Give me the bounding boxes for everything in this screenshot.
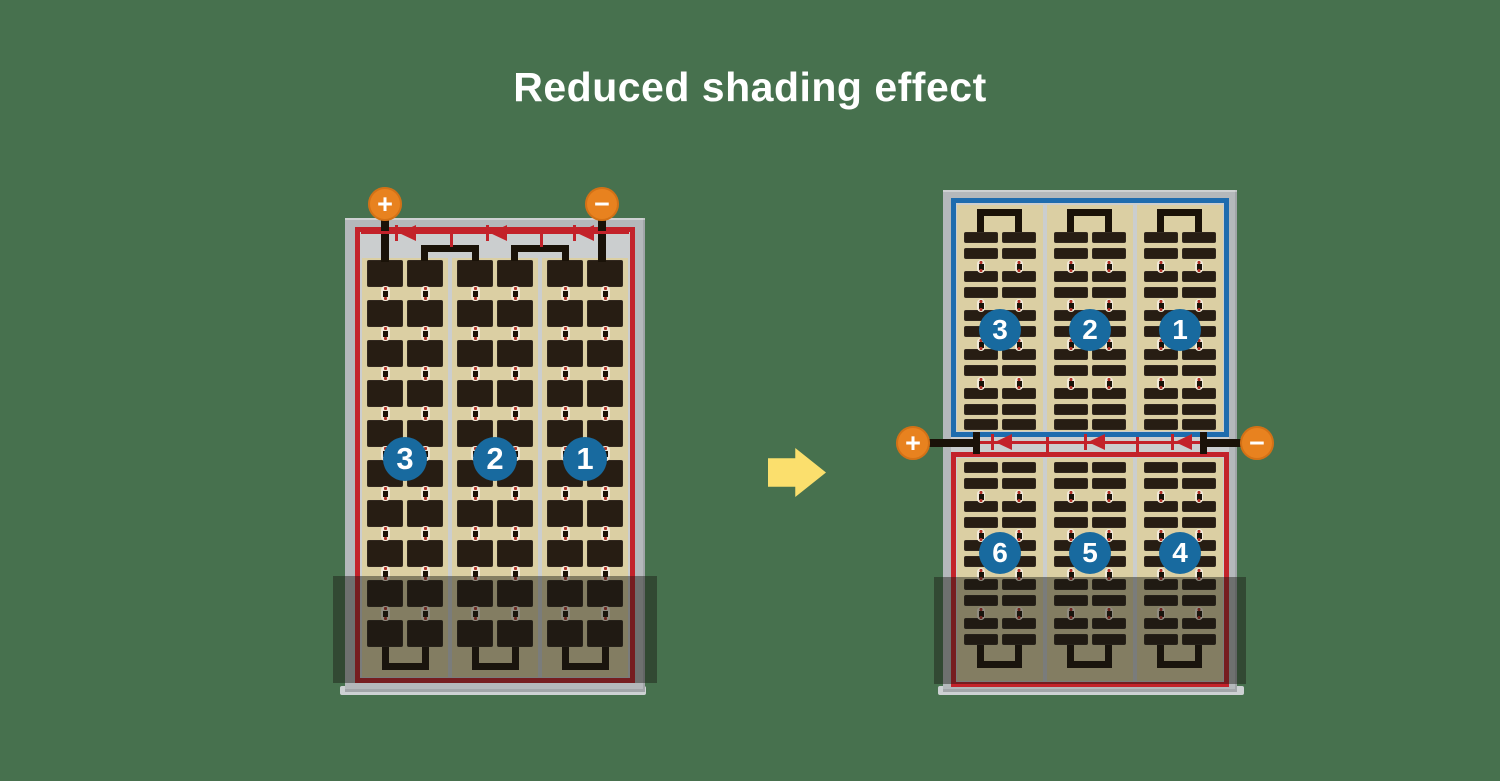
string-separator [1133,205,1137,431]
half-cell [1002,517,1036,528]
reduced-shading-diagram: Reduced shading effect 321+− 362514+− [0,0,1500,781]
half-cell [964,517,998,528]
half-cell [1144,232,1178,243]
half-cell [964,462,998,473]
half-cell [1144,462,1178,473]
half-cell [1054,478,1088,489]
half-cell [1092,404,1126,415]
cell-connector [1105,299,1113,312]
half-cell [1144,517,1178,528]
string-label-2: 2 [1069,309,1111,351]
negative-terminal: − [1240,426,1274,460]
positive-terminal: + [896,426,930,460]
string-label-1: 1 [1159,309,1201,351]
cell-connector [1195,260,1203,273]
bypass-diode-icon [1170,434,1192,450]
half-cell [1182,478,1216,489]
half-cell [1092,232,1126,243]
cell-connector [1105,490,1113,503]
half-cell [1054,365,1088,376]
cell-connector [1015,377,1023,390]
cell-connector [1157,260,1165,273]
shading-overlay [934,577,1246,684]
bypass-diode-icon [1083,434,1105,450]
half-cell [1002,419,1036,430]
half-cell [1054,232,1088,243]
cell-connector [977,490,985,503]
half-cell [1182,365,1216,376]
half-cell [1092,365,1126,376]
cell-connector [1067,299,1075,312]
string-label-3: 3 [979,309,1021,351]
cell-connector [1067,490,1075,503]
half-cell [1054,462,1088,473]
half-cell [1144,287,1178,298]
half-cell [964,287,998,298]
cell-connector [1195,299,1203,312]
string-u-link [977,209,1022,233]
string-label-4: 4 [1159,532,1201,574]
cell-connector [1015,299,1023,312]
half-cell [1092,248,1126,259]
half-cell [1144,404,1178,415]
half-cell [1182,419,1216,430]
half-cell [964,478,998,489]
half-cell [1054,419,1088,430]
diode-tap [1046,437,1049,452]
half-cell [1054,248,1088,259]
half-cell [1182,462,1216,473]
half-cell [1144,248,1178,259]
string-u-link [1157,209,1202,233]
string-label-5: 5 [1069,532,1111,574]
half-cell [1054,404,1088,415]
half-cell [1002,462,1036,473]
half-cell [1002,478,1036,489]
half-cell [964,365,998,376]
half-cell [1092,478,1126,489]
cell-connector [1195,377,1203,390]
half-cell [1182,232,1216,243]
cell-connector [977,377,985,390]
half-cell [1182,287,1216,298]
cell-connector [1105,260,1113,273]
half-cell [1092,419,1126,430]
half-cell [964,419,998,430]
half-cell [1092,517,1126,528]
diode-cathode-bar [1171,434,1174,450]
cell-connector [1015,490,1023,503]
diode-tap [1136,437,1139,452]
half-cell [1002,248,1036,259]
half-cell [1002,404,1036,415]
half-cell [1054,517,1088,528]
string-u-link [1067,209,1112,233]
cell-connector [1157,490,1165,503]
cell-connector [1157,299,1165,312]
diode-cathode-bar [991,434,994,450]
diode-cathode-bar [1084,434,1087,450]
half-cell [1002,287,1036,298]
cell-connector [977,260,985,273]
half-cell [1182,404,1216,415]
cell-connector [977,299,985,312]
cell-connector [1067,260,1075,273]
diode-triangle-icon [1088,434,1105,450]
cell-connector [1067,377,1075,390]
string-separator [1043,205,1047,431]
cell-connector [1105,377,1113,390]
half-cell [1002,365,1036,376]
half-cell [1144,478,1178,489]
half-cell [964,232,998,243]
half-cell [1144,419,1178,430]
bypass-diode-icon [990,434,1012,450]
diode-triangle-icon [1175,434,1192,450]
string-label-6: 6 [979,532,1021,574]
half-cell [1092,287,1126,298]
half-cell [1144,365,1178,376]
half-cell [1182,517,1216,528]
cell-connector [1195,490,1203,503]
cell-connector [1015,260,1023,273]
half-cell [964,404,998,415]
diode-triangle-icon [995,434,1012,450]
half-cell [964,248,998,259]
half-cell [1092,462,1126,473]
cell-connector [1157,377,1165,390]
split-module-panel: 362514+− [0,0,1500,781]
positive-lead [929,439,975,447]
half-cell [1002,232,1036,243]
half-cell [1182,248,1216,259]
half-cell [1054,287,1088,298]
